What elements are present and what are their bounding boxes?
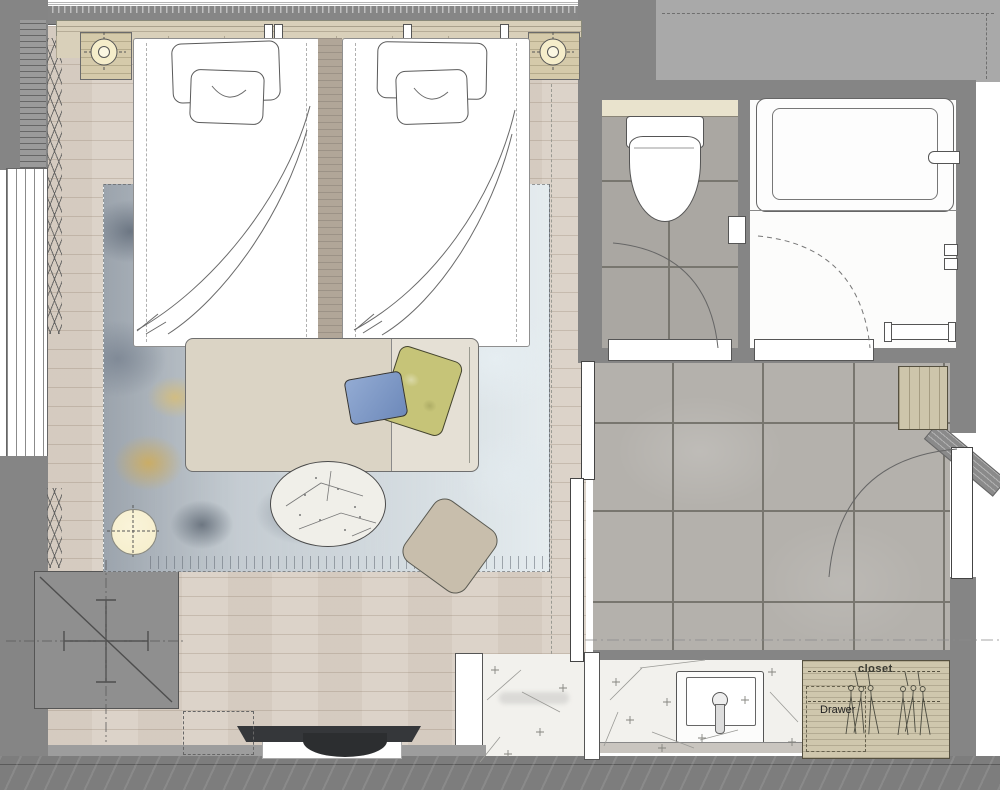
- closet-label: closet: [858, 663, 893, 675]
- shower-bench-cap: [948, 322, 956, 342]
- boundary-dashdot-line: [662, 13, 994, 14]
- toilet-door-threshold: [608, 339, 732, 361]
- shower-bench: [886, 324, 954, 340]
- curtain-lower: [47, 488, 62, 568]
- shower-bench-cap: [884, 322, 892, 342]
- floor-plan: closet Drawer: [0, 0, 1000, 790]
- bottom-wall: [0, 756, 1000, 790]
- tub-spout: [928, 151, 960, 164]
- entry-door: [951, 447, 973, 579]
- bathtub-inner: [772, 108, 938, 200]
- hall-sink-divider-wall: [593, 650, 950, 660]
- faint-watermark: [499, 692, 569, 704]
- bath-right-wall: [956, 88, 976, 352]
- shower-control: [944, 258, 958, 270]
- toilet-paper-holder: [728, 216, 746, 244]
- window: [6, 168, 48, 458]
- console-dashed-outline: [183, 711, 254, 755]
- shower-mixer: [944, 244, 958, 256]
- floor-lamp: [111, 509, 157, 555]
- nightstand-left: [80, 32, 132, 80]
- drawer-label: Drawer: [820, 704, 855, 716]
- sliding-partition-panel: [581, 361, 595, 480]
- bath-top-wall: [596, 80, 976, 100]
- left-wall-hatch: [20, 20, 46, 168]
- bathroom-door-threshold: [754, 339, 874, 361]
- nightstand-right: [528, 32, 580, 80]
- luggage-cabinet: [898, 366, 948, 430]
- wood-center-dashed-line: [551, 84, 552, 684]
- sink-divider-wall: [584, 652, 600, 760]
- sliding-partition-panel: [570, 478, 584, 662]
- boundary-dashdot-vertical: [986, 13, 987, 79]
- structural-column: [34, 571, 179, 709]
- bed-right-front-pillow: [395, 69, 469, 125]
- curtain-upper: [47, 38, 62, 334]
- toilet-room-cream-ledge: [600, 100, 740, 117]
- vanity-base: [600, 742, 802, 753]
- neighbor-space: [656, 0, 1000, 82]
- hall-right-wall-top: [950, 363, 976, 433]
- entry-hall-tile-floor: [593, 363, 950, 657]
- faucet-stem: [715, 704, 725, 734]
- terrazzo-floor-left: [481, 654, 584, 758]
- round-coffee-table: [270, 461, 386, 547]
- closet-right-wall: [948, 655, 976, 759]
- tub-floor-line: [748, 210, 958, 211]
- hall-right-wall-bottom: [950, 577, 976, 662]
- drawer-unit-outline: [806, 686, 866, 752]
- bed-partition-strip: [318, 38, 342, 345]
- bed-left-front-pillow: [189, 69, 265, 126]
